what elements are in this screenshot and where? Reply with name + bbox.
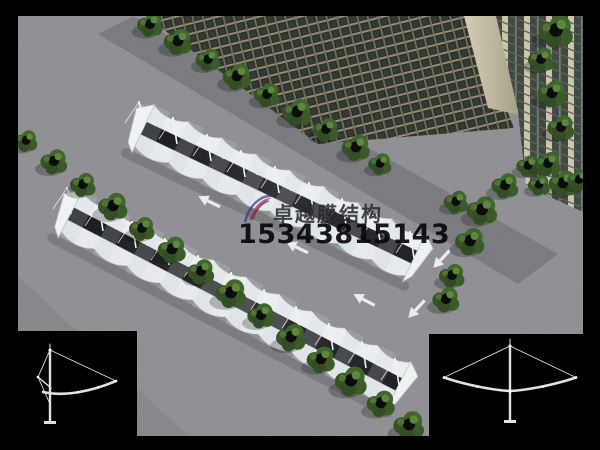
diagram-left-arm bbox=[444, 378, 510, 392]
diagram-cable bbox=[50, 350, 116, 381]
diagram-right-arm bbox=[510, 378, 576, 392]
frame-diagram-double-cantilever bbox=[429, 334, 600, 450]
rendering-canvas: 卓越膜结构 15343815143 bbox=[0, 0, 600, 450]
frame-diagram-single-cantilever bbox=[0, 331, 137, 450]
diagram-cantilever-arm bbox=[43, 381, 116, 394]
